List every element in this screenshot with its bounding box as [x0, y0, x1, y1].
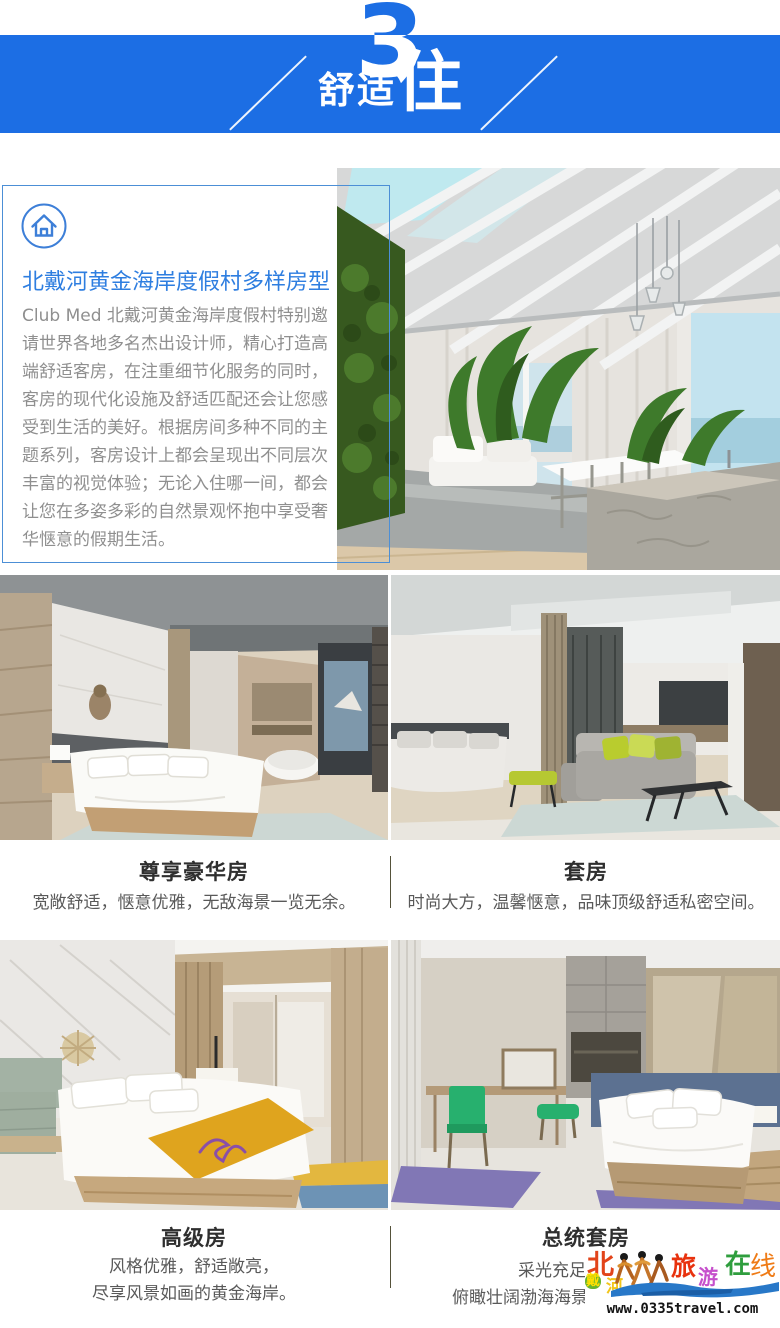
- caption-divider-2: [390, 1226, 391, 1288]
- home-icon: [20, 202, 68, 250]
- section-number-upper: 3: [0, 0, 780, 35]
- intro-paragraph: Club Med 北戴河黄金海岸度假村特别邀请世界各地多名杰出设计师，精心打造高…: [22, 302, 340, 554]
- wave-icon: [611, 1279, 779, 1299]
- section-number: 3: [0, 0, 780, 35]
- room-desc-presidential-line1: 采光充足: [518, 1256, 586, 1281]
- room-desc-suite: 时尚大方，温馨惬意，品味顶级舒适私密空间。: [392, 890, 780, 917]
- room-title-superior: 高级房: [0, 1222, 388, 1252]
- photo-deluxe-room: [0, 575, 388, 840]
- room-title-deluxe: 尊享豪华房: [0, 856, 388, 886]
- section-title-big: 住: [396, 50, 462, 116]
- photo-suite-room: [391, 575, 780, 840]
- photo-presidential-suite: [391, 940, 780, 1210]
- photo-superior-room: [0, 940, 388, 1210]
- watermark-url: www.0335travel.com: [585, 1301, 780, 1317]
- room-title-presidential: 总统套房: [392, 1222, 780, 1252]
- room-desc-presidential-line2: 俯瞰壮阔渤海海景: [452, 1283, 588, 1308]
- room-title-suite: 套房: [392, 856, 780, 886]
- promo-page: 3 3 舒适 住: [0, 0, 780, 1328]
- room-desc-superior-line1: 风格优雅，舒适敞亮，: [109, 1257, 279, 1277]
- intro-title: 北戴河黄金海岸度假村多样房型: [22, 264, 362, 296]
- watermark-char-dai: 戴: [585, 1274, 601, 1289]
- watermark-char-lv: 旅: [671, 1254, 696, 1279]
- section-title: 舒适 住: [0, 50, 780, 116]
- room-desc-superior-line2: 尽享风景如画的黄金海岸。: [92, 1284, 296, 1304]
- living-room-illustration: [337, 168, 780, 570]
- site-watermark: 北 戴 河 旅 游 在 线: [585, 1252, 780, 1318]
- caption-divider-1: [390, 856, 391, 908]
- room-desc-deluxe: 宽敞舒适，惬意优雅，无敌海景一览无余。: [0, 890, 388, 917]
- photo-resort-living-room: [337, 168, 780, 570]
- watermark-char-xian: 线: [750, 1254, 776, 1280]
- watermark-char-zai: 在: [725, 1252, 751, 1278]
- section-title-small: 舒适: [318, 72, 396, 116]
- room-desc-superior: 风格优雅，舒适敞亮， 尽享风景如画的黄金海岸。: [0, 1254, 388, 1308]
